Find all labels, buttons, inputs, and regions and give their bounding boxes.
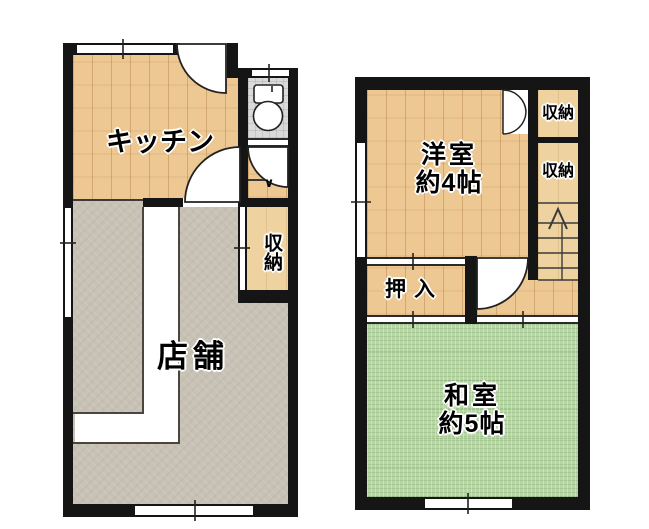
entrance-doorway-gap [180,43,227,55]
fusuma-hall-japanese [477,315,578,324]
western-room-label: 洋室 約4帖 [375,141,523,197]
shop-counter-area-vertical [144,207,178,414]
japanese-room-label: 和室 約5帖 [396,382,548,438]
fusuma-oshiire-japanese [367,315,465,324]
toilet-doorway [248,138,288,147]
stairs-floor [538,203,578,280]
counter-edge-line [178,207,180,444]
shop-side-window [63,208,73,317]
counter-edge-line [73,442,180,444]
shop-doorway-gap [183,198,238,207]
wall-segment [528,137,578,143]
shop-counter-area-horizontal [75,414,178,442]
wall-segment [355,77,590,90]
counter-edge-line [73,412,144,414]
room-toilet-floor [248,78,288,138]
japanese-room-window [425,497,512,510]
shop-label: 店舗 [118,340,268,375]
kitchen-window [77,43,173,55]
japanese-room-size: 約5帖 [396,410,548,438]
wall-segment [238,78,248,198]
fusuma-western-oshiire [367,257,465,266]
closet-mid-label: 収納 [536,163,580,181]
storage1f-sliding-door [238,207,247,290]
kitchen-shop-boundary [73,199,143,201]
western-room-size: 約4帖 [375,169,523,197]
entry-step-mark: ∨ [257,176,281,191]
wall-segment [465,256,477,324]
closet-bifold-area [503,90,528,134]
wall-segment [238,198,298,207]
closet-top-label: 収納 [536,105,580,123]
wall-segment [143,198,183,207]
storage1f-label: 収納 [256,220,282,284]
western-room-name: 洋室 [375,141,523,169]
kitchen-label: キッチン [85,127,235,157]
wall-segment [578,77,590,510]
shop-front-door [135,504,253,517]
floorplan-canvas: キッチン 収納 店舗 ∨ 洋室 約4帖 収納 収納 押入 和室 約5帖 [0,0,649,529]
western-room-window [355,143,367,257]
toilet-window [252,68,289,78]
oshiire-label: 押入 [366,278,462,302]
counter-edge-line [142,207,144,414]
japanese-room-name: 和室 [396,382,548,410]
wall-segment [238,290,298,303]
